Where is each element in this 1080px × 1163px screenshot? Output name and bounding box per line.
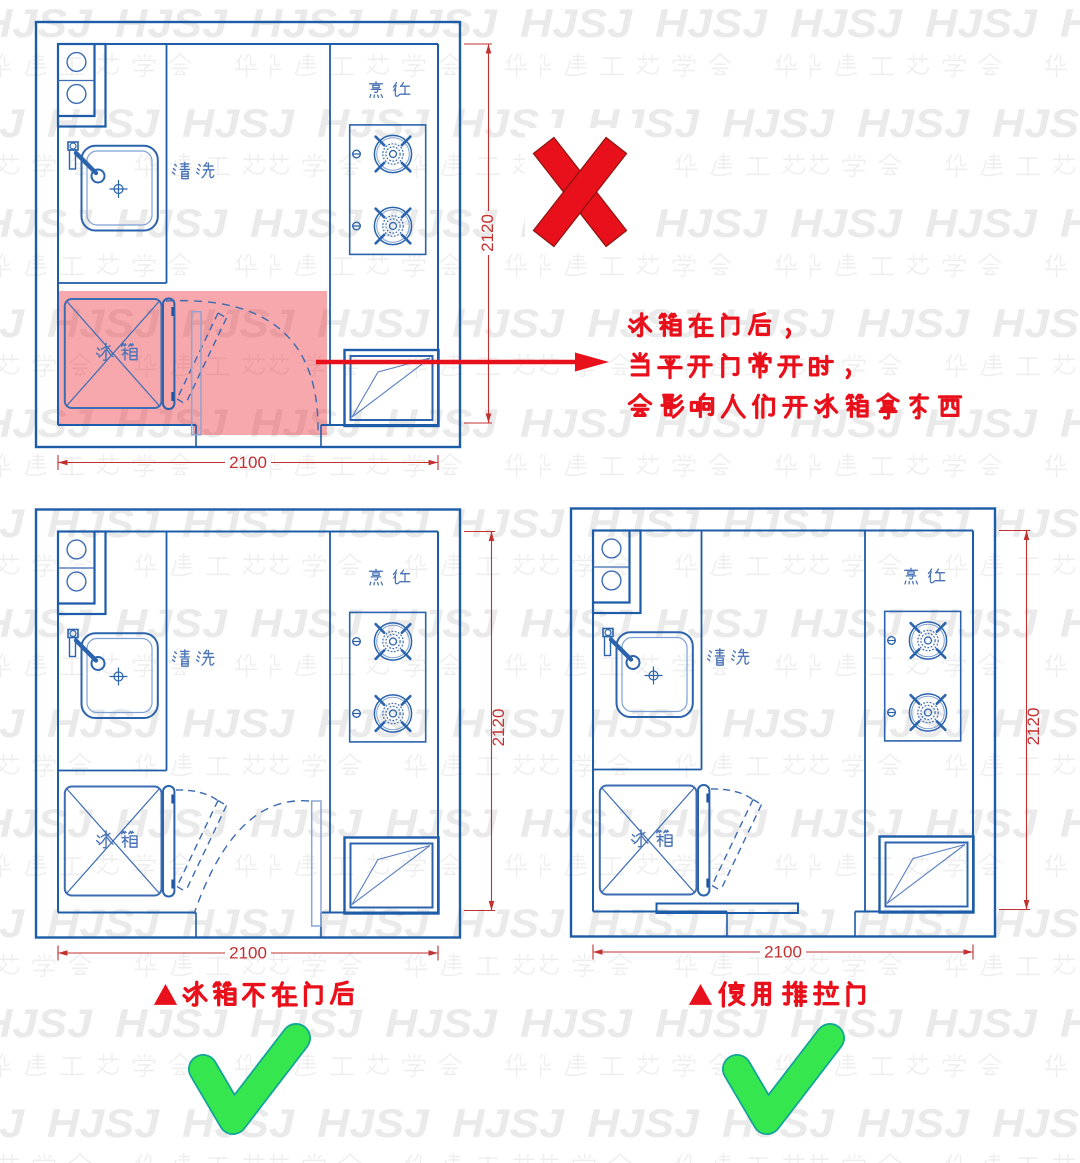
svg-text:2120: 2120 bbox=[1024, 708, 1043, 746]
svg-text:2100: 2100 bbox=[764, 943, 802, 962]
svg-text:2120: 2120 bbox=[478, 214, 497, 252]
svg-text:2100: 2100 bbox=[229, 453, 267, 472]
svg-text:2100: 2100 bbox=[229, 944, 267, 963]
svg-text:2120: 2120 bbox=[489, 709, 508, 747]
